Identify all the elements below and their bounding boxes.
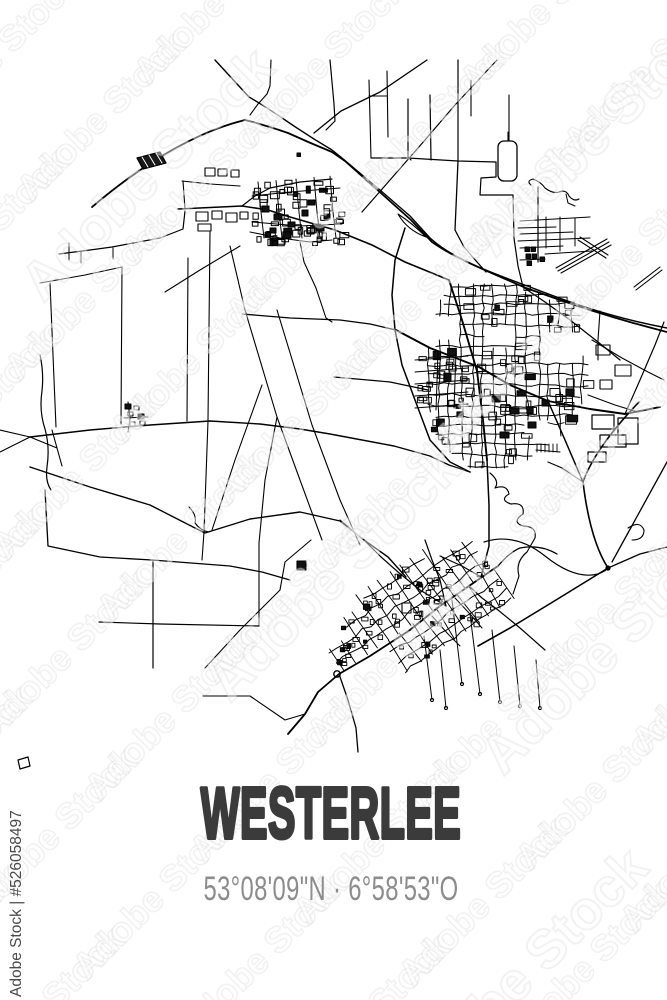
- svg-text:WESTERLEE: WESTERLEE: [201, 774, 461, 854]
- svg-text:Adobe Stock | #526058497: Adobe Stock | #526058497: [8, 810, 25, 997]
- svg-text:53°08'09"N · 6°58'53"O: 53°08'09"N · 6°58'53"O: [203, 870, 458, 908]
